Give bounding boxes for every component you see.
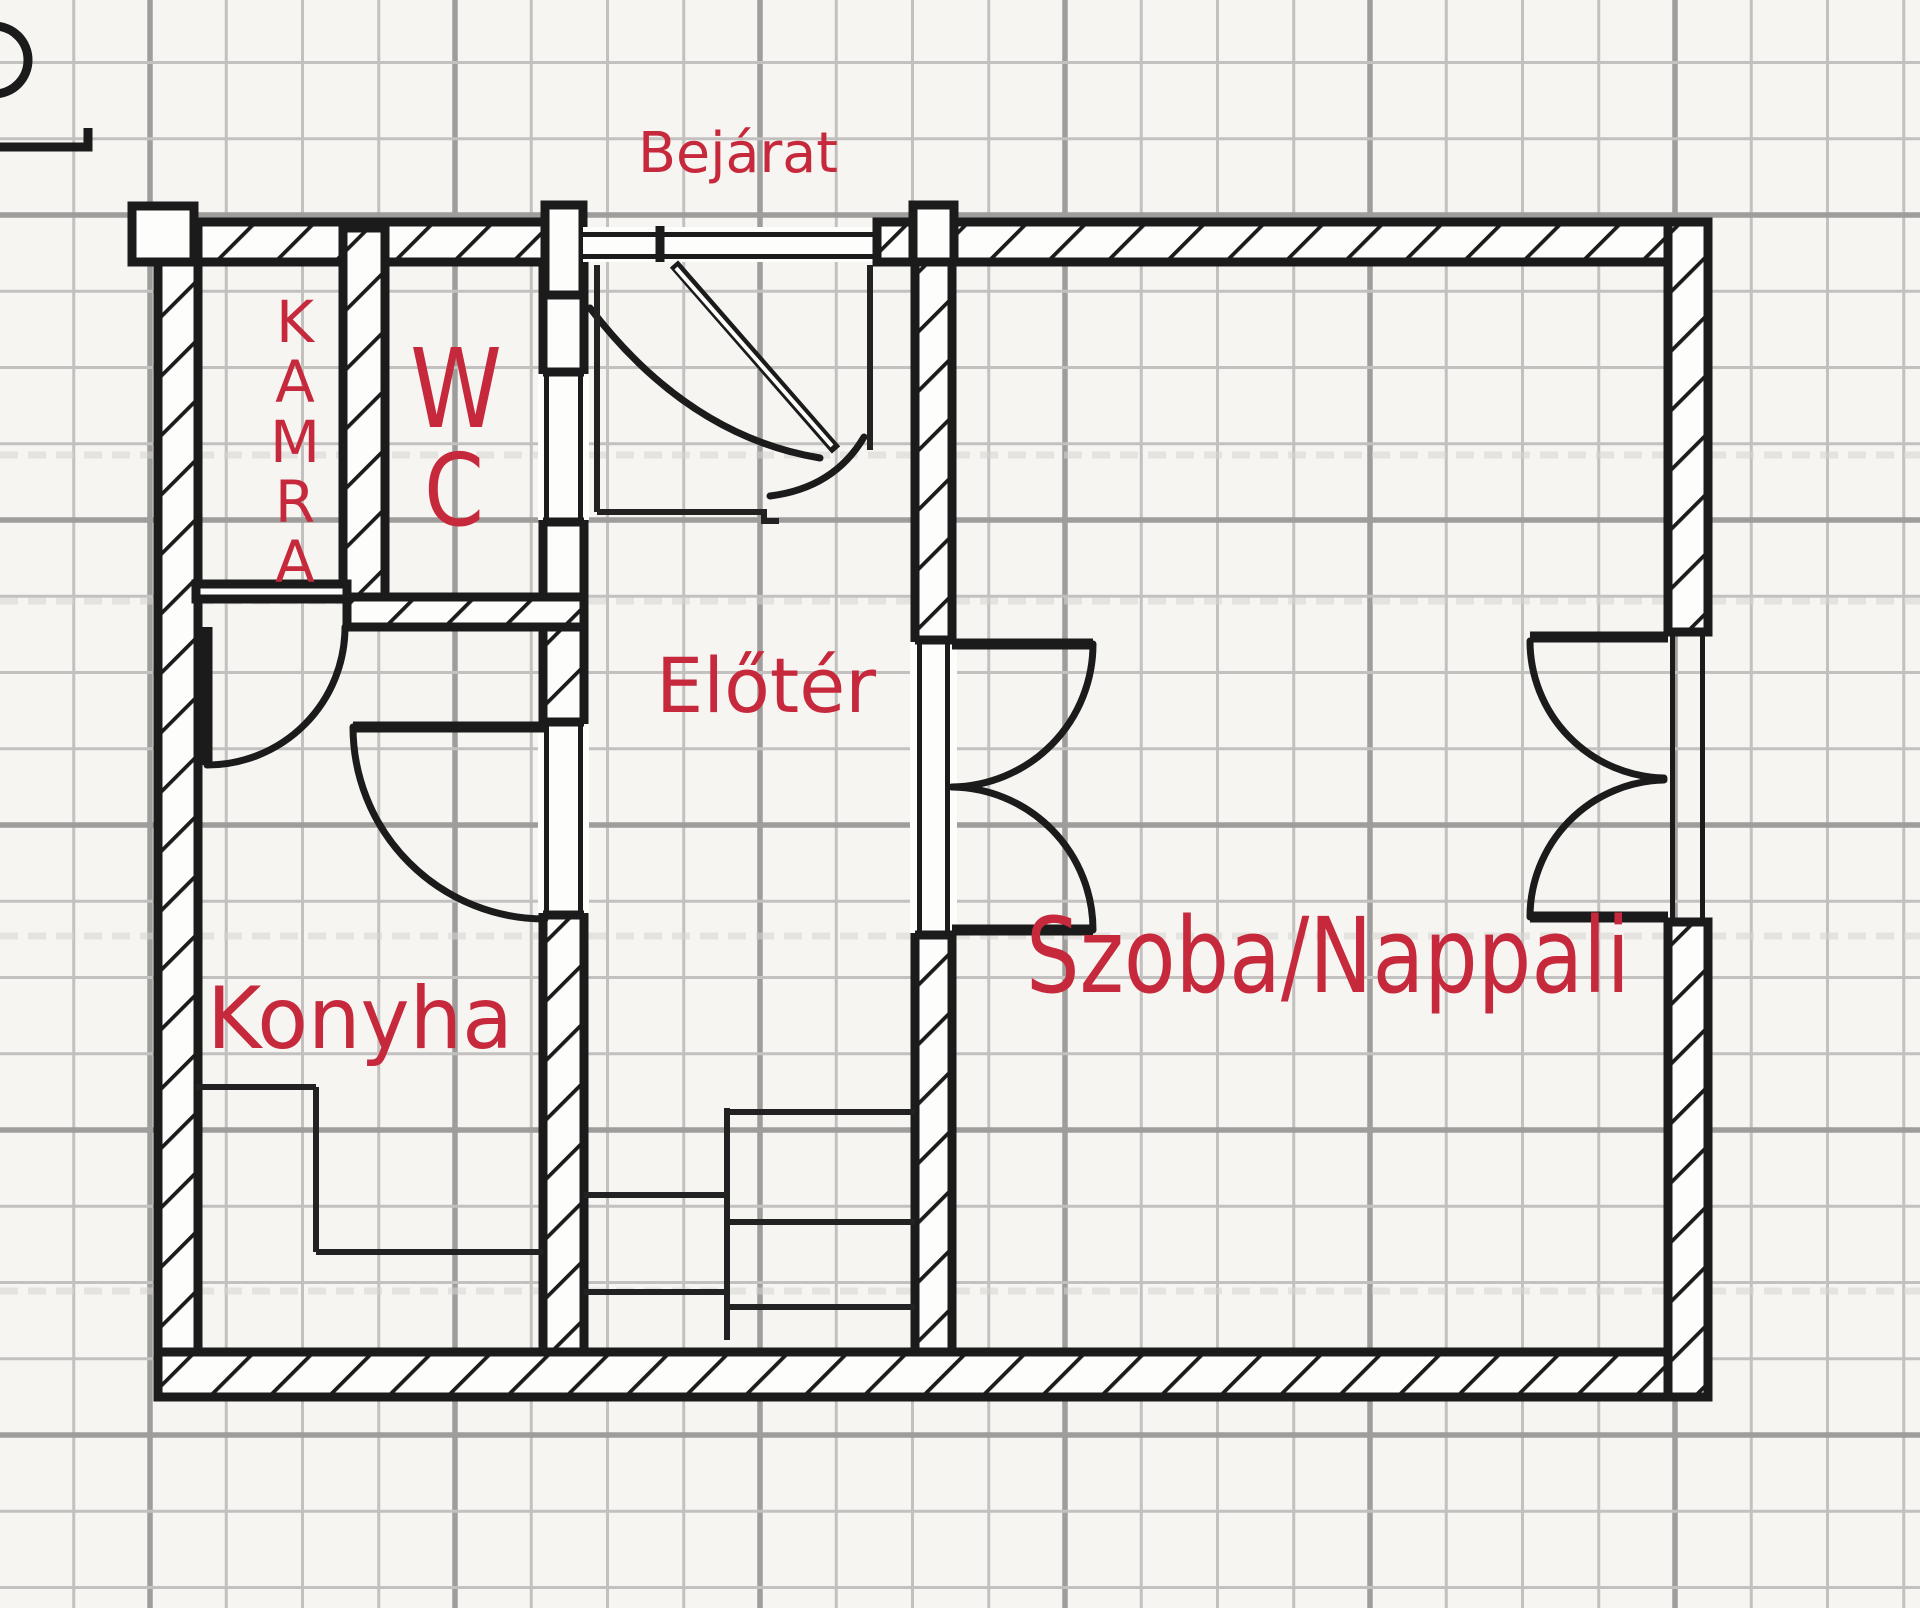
kitchen-hall-wall-lower bbox=[543, 915, 584, 1352]
hall-livingroom-post bbox=[913, 205, 954, 262]
exterior-wall-top-right bbox=[877, 222, 1708, 262]
hall-livingroom-wall-lower bbox=[915, 935, 952, 1352]
label-entrance: Bejárat bbox=[638, 121, 838, 186]
entry-door-arc-2 bbox=[770, 437, 864, 496]
livingroom-door-arc-top bbox=[952, 644, 1093, 787]
entry-left-post bbox=[545, 205, 583, 295]
openings bbox=[538, 222, 1708, 935]
exterior-wall-right-upper bbox=[1668, 222, 1708, 632]
entry-door-leaf-core bbox=[676, 268, 832, 446]
exterior-wall-bottom bbox=[158, 1352, 1708, 1397]
label-pantry-letter-m: M bbox=[270, 408, 320, 476]
floorplan-page: Bejárat K A M R A W C Előtér Konyha Szob… bbox=[0, 0, 1920, 1608]
label-pantry-letter-a2: A bbox=[275, 528, 315, 596]
label-pantry-letter-k: K bbox=[276, 288, 316, 356]
exterior-wall-right-lower bbox=[1668, 922, 1708, 1397]
label-pantry-letter-r: R bbox=[275, 468, 315, 536]
corner-mark-circle bbox=[0, 26, 28, 94]
hall-livingroom-wall-upper bbox=[915, 262, 952, 640]
kitchen-hall-wall-mid bbox=[543, 627, 584, 722]
label-pantry-letter-a1: A bbox=[275, 348, 315, 416]
pantry-wc-wall bbox=[343, 228, 385, 597]
label-wc-c: C bbox=[424, 432, 484, 549]
exterior-wall-left bbox=[158, 222, 198, 1397]
label-kitchen: Konyha bbox=[207, 969, 513, 1069]
label-hall: Előtér bbox=[656, 641, 877, 730]
pantry-bottom-wall bbox=[196, 584, 347, 599]
floorplan-canvas: Bejárat K A M R A W C Előtér Konyha Szob… bbox=[0, 0, 1920, 1608]
window-arc-top bbox=[1530, 641, 1664, 778]
entry-door-arc-1 bbox=[590, 308, 820, 458]
corner-post bbox=[132, 206, 194, 262]
label-living-room: Szoba/Nappali bbox=[1026, 895, 1630, 1017]
